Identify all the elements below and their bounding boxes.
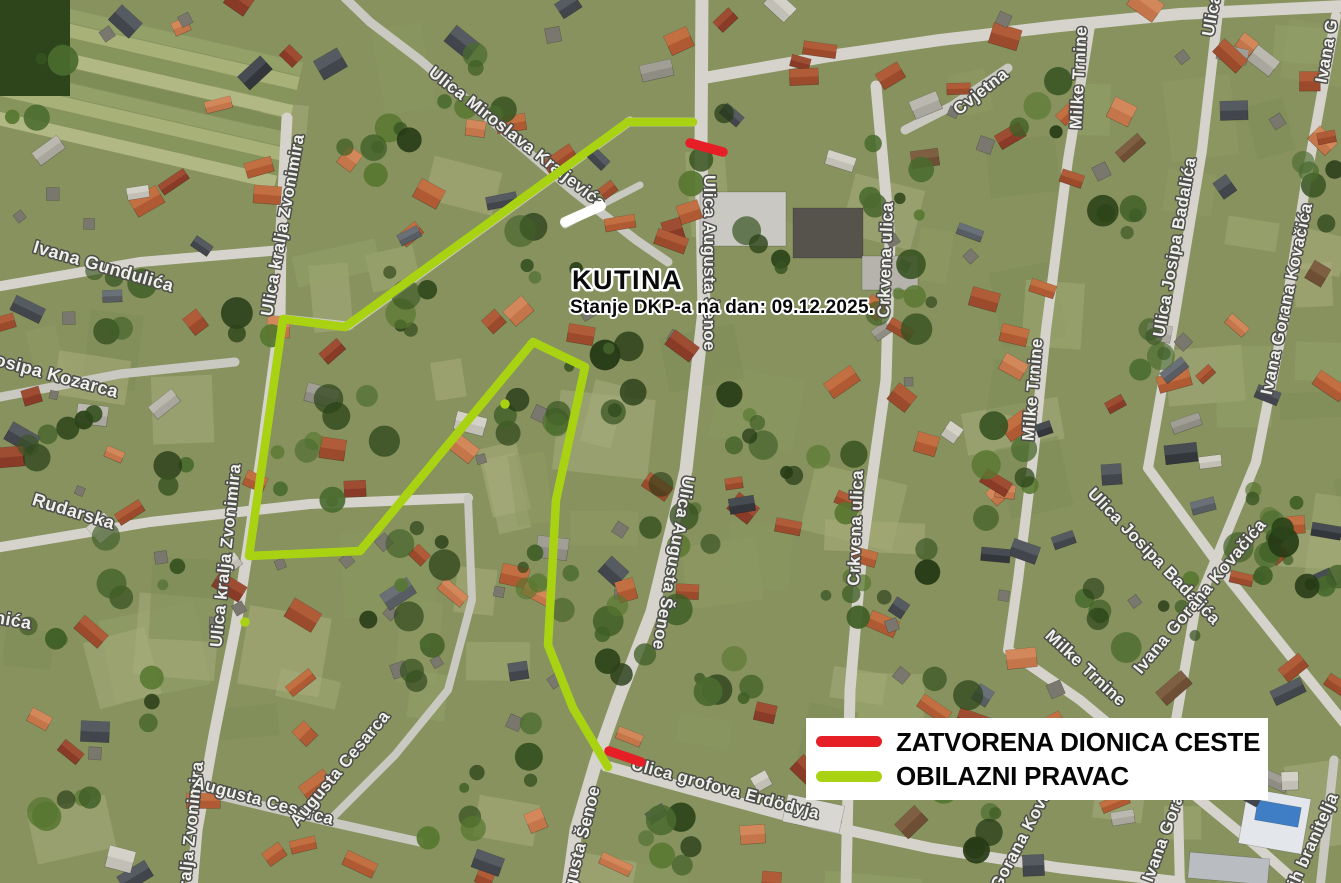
detour-endpoint-dot [240, 617, 249, 626]
map-title: KUTINA [572, 265, 683, 295]
closed-road-swatch [816, 736, 882, 747]
legend-item-detour: OBILAZNI PRAVAC [816, 763, 1268, 789]
map-subtitle: Stanje DKP-a na dan: 09.12.2025. [570, 297, 874, 318]
legend-label-detour: OBILAZNI PRAVAC [896, 763, 1129, 789]
legend-item-closed-road: ZATVORENA DIONICA CESTE [816, 729, 1268, 755]
legend: ZATVORENA DIONICA CESTE OBILAZNI PRAVAC [806, 718, 1268, 800]
legend-label-closed-road: ZATVORENA DIONICA CESTE [896, 729, 1260, 755]
detour-endpoint-dot [500, 399, 509, 408]
map-canvas: Ulica Miroslava KraljevićaUlica Augusta … [0, 0, 1341, 883]
street-label: Ulica Augusta Šenoe [700, 175, 719, 351]
street-label: Crkvena ulica [874, 201, 897, 317]
detour-swatch [816, 771, 882, 782]
street-label: Crkvena ulica [844, 469, 867, 585]
